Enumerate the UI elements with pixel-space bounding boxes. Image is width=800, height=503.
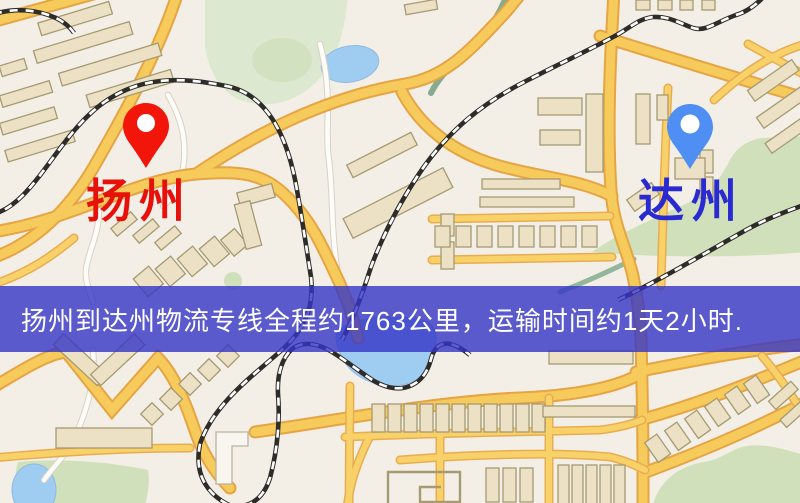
route-info-banner: 扬州到达州物流专线全程约1763公里，运输时间约1天2小时. [0,286,800,352]
map-image [0,0,800,503]
route-info-text: 扬州到达州物流专线全程约1763公里，运输时间约1天2小时. [0,301,743,338]
logistics-route-map: 扬州 达州 扬州到达州物流专线全程约1763公里，运输时间约1天2小时. [0,0,800,503]
origin-city-label: 扬州 [86,179,192,225]
destination-city-label: 达州 [638,179,744,225]
